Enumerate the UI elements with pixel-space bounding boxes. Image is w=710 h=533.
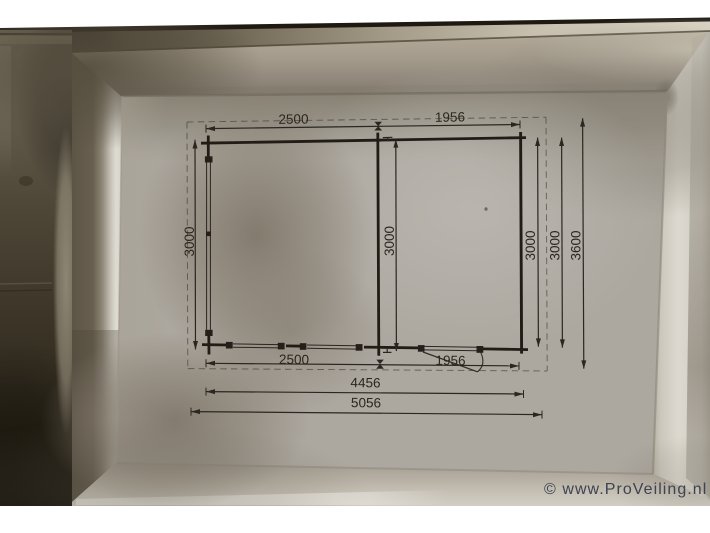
svg-text:4456: 4456 [350, 375, 380, 390]
svg-text:3600: 3600 [569, 230, 584, 260]
svg-text:1956: 1956 [435, 353, 465, 368]
svg-text:© www.ProVeiling.nl: © www.ProVeiling.nl [544, 481, 707, 498]
svg-text:5056: 5056 [351, 395, 381, 410]
svg-text:3000: 3000 [382, 226, 397, 256]
svg-text:2500: 2500 [278, 111, 308, 126]
svg-text:3000: 3000 [182, 226, 197, 256]
svg-text:1956: 1956 [435, 109, 465, 124]
svg-text:3000: 3000 [523, 230, 538, 260]
svg-text:2500: 2500 [279, 352, 309, 367]
svg-text:3000: 3000 [548, 230, 563, 260]
